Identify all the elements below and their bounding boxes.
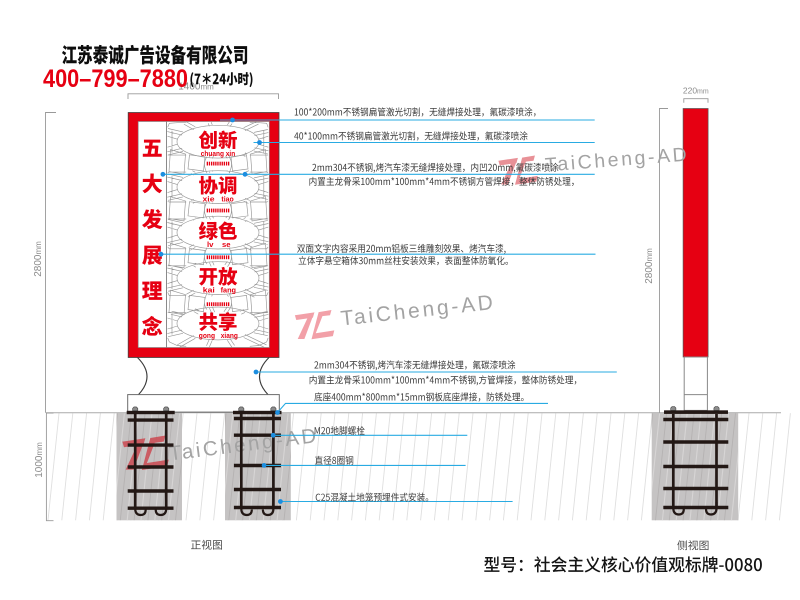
svg-text:kai: kai [203, 285, 215, 294]
svg-text:2800mm: 2800mm [33, 241, 44, 277]
svg-text:xiang: xiang [221, 331, 238, 340]
svg-text:gong: gong [199, 331, 216, 340]
svg-text:1000mm: 1000mm [34, 442, 45, 478]
svg-text:chuang xin: chuang xin [201, 149, 236, 158]
svg-text:lv: lv [207, 240, 214, 249]
svg-text:tiao: tiao [221, 195, 234, 204]
svg-text:se: se [222, 240, 231, 249]
svg-text:400–799–7880: 400–799–7880 [43, 65, 188, 93]
svg-text:2800mm: 2800mm [644, 248, 655, 284]
svg-text:fang: fang [221, 285, 237, 294]
svg-text:xie: xie [203, 195, 215, 204]
